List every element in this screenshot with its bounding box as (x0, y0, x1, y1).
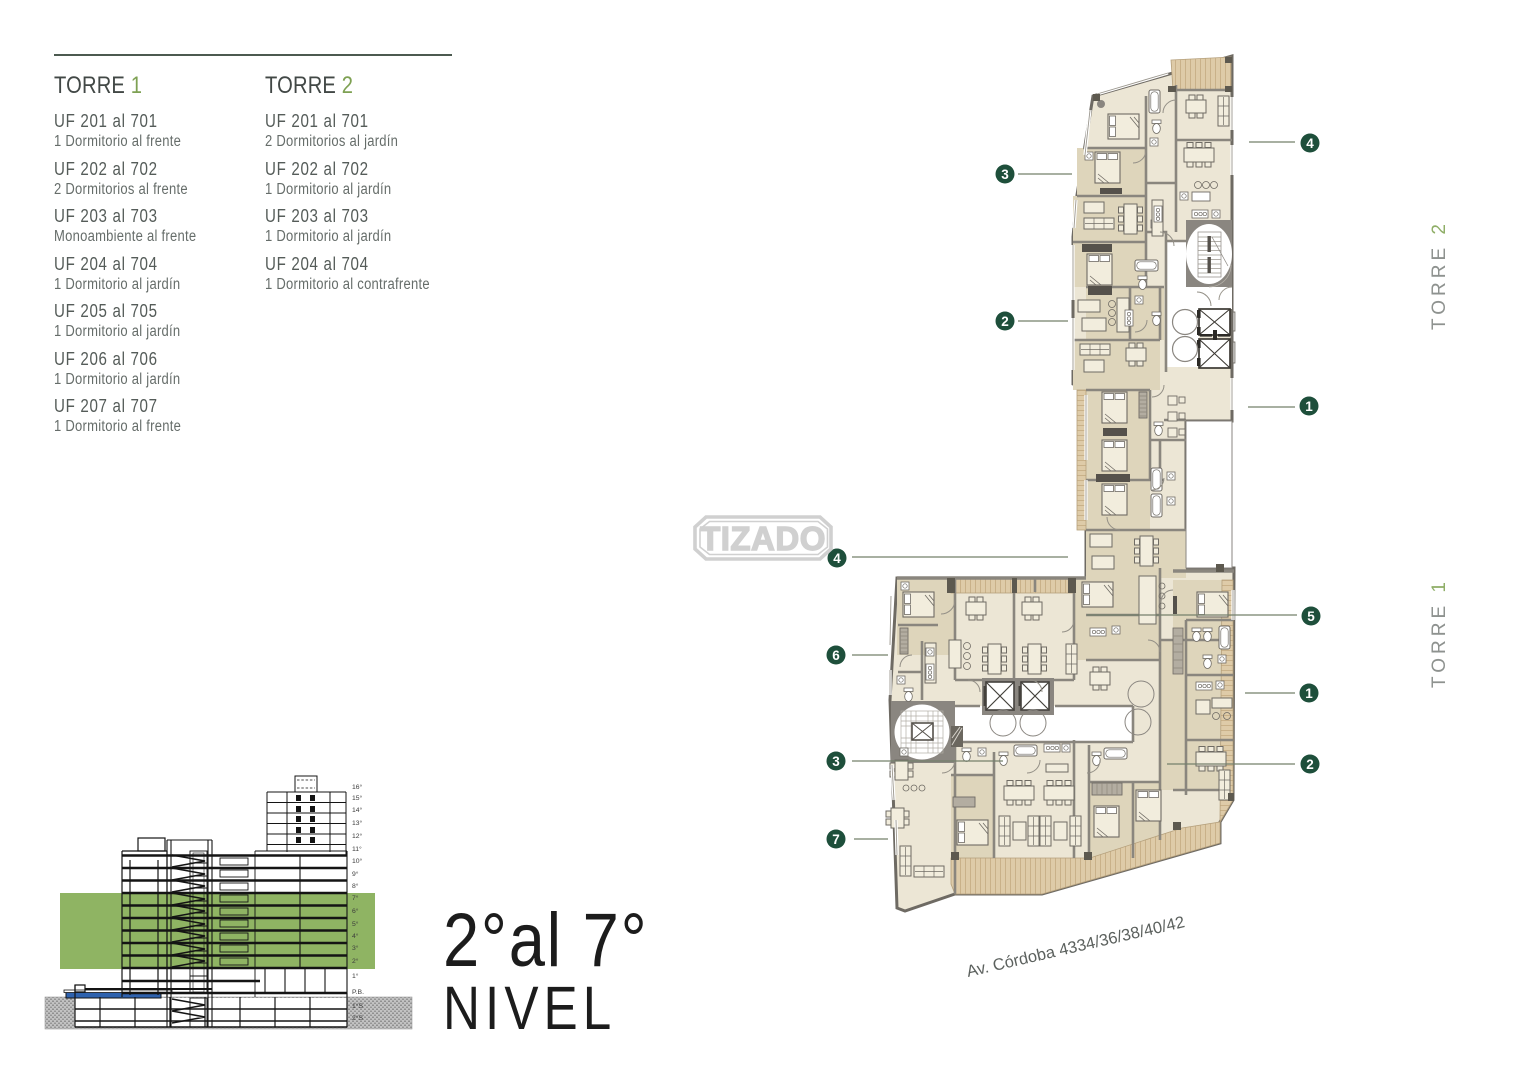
svg-text:1: 1 (1305, 686, 1313, 701)
svg-text:3°: 3° (352, 944, 359, 952)
svg-text:9°: 9° (352, 870, 359, 878)
svg-text:P.B.: P.B. (352, 989, 364, 996)
svg-text:3: 3 (1001, 167, 1009, 182)
svg-text:12°: 12° (352, 832, 363, 840)
svg-text:6: 6 (832, 648, 840, 663)
svg-text:Av. Córdoba 4334/36/38/40/42: Av. Córdoba 4334/36/38/40/42 (965, 913, 1187, 981)
svg-text:3: 3 (832, 754, 840, 769)
svg-text:7: 7 (832, 832, 840, 847)
svg-text:11°: 11° (352, 845, 362, 853)
svg-text:2: 2 (1001, 314, 1009, 329)
svg-text:2: 2 (1306, 757, 1314, 772)
svg-text:14°: 14° (352, 806, 363, 814)
svg-text:TIZADO: TIZADO (700, 520, 826, 557)
svg-text:1°: 1° (352, 972, 359, 980)
svg-text:2°: 2° (352, 957, 359, 965)
svg-text:13°: 13° (352, 819, 363, 827)
svg-text:6°: 6° (352, 907, 359, 915)
svg-text:5: 5 (1307, 609, 1315, 624)
svg-text:7°: 7° (352, 894, 359, 902)
svg-text:5°: 5° (352, 920, 359, 928)
svg-text:TORRE 1: TORRE 1 (1429, 578, 1450, 688)
svg-text:1°S: 1°S (352, 1002, 363, 1010)
svg-text:4: 4 (1306, 136, 1314, 151)
svg-text:10°: 10° (352, 857, 363, 865)
svg-text:2°S: 2°S (352, 1014, 363, 1022)
svg-text:15°: 15° (352, 794, 363, 802)
svg-text:TORRE 2: TORRE 2 (1429, 220, 1450, 330)
svg-text:4: 4 (833, 551, 841, 566)
svg-text:16°: 16° (352, 783, 363, 791)
svg-text:4°: 4° (352, 932, 359, 940)
svg-text:1: 1 (1305, 399, 1313, 414)
svg-text:8°: 8° (352, 882, 359, 890)
